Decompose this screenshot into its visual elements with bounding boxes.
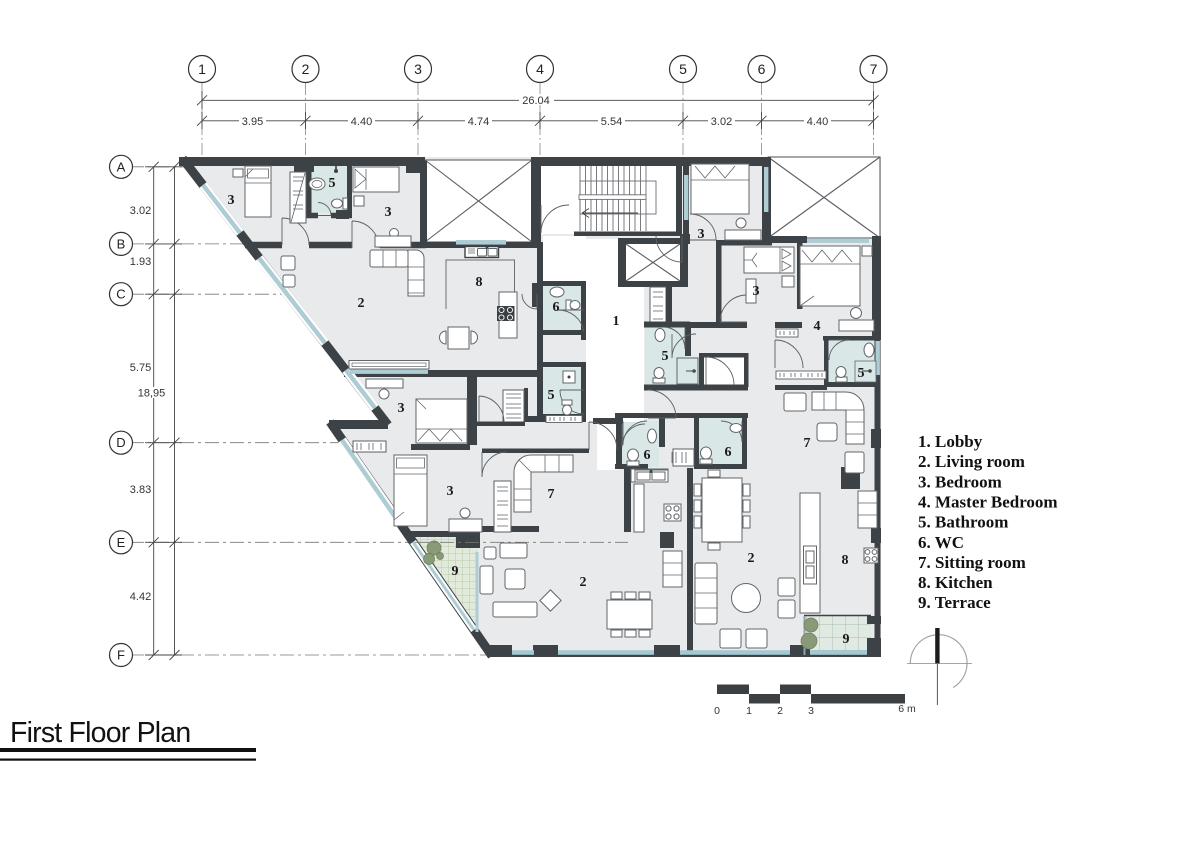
svg-text:6: 6 (758, 61, 766, 77)
svg-text:9: 9 (843, 632, 850, 647)
svg-text:6. WC: 6. WC (918, 533, 964, 552)
svg-text:6: 6 (553, 300, 560, 315)
svg-text:6: 6 (725, 445, 732, 460)
svg-text:3: 3 (414, 61, 422, 77)
svg-text:2: 2 (358, 296, 365, 311)
svg-text:26.04: 26.04 (522, 95, 550, 107)
svg-text:3.95: 3.95 (242, 116, 263, 128)
svg-text:0: 0 (714, 705, 720, 717)
svg-text:3: 3 (385, 205, 392, 220)
svg-text:1.93: 1.93 (130, 256, 151, 268)
svg-text:3: 3 (447, 484, 454, 499)
svg-text:D: D (116, 435, 125, 450)
svg-text:4.40: 4.40 (351, 116, 372, 128)
svg-text:4: 4 (814, 319, 821, 334)
svg-text:4: 4 (536, 61, 544, 77)
svg-text:3.02: 3.02 (711, 116, 732, 128)
svg-text:4.74: 4.74 (468, 116, 489, 128)
svg-text:3: 3 (698, 227, 705, 242)
svg-text:1: 1 (746, 705, 752, 717)
svg-text:A: A (117, 159, 126, 174)
svg-text:4. Master Bedroom: 4. Master Bedroom (918, 493, 1058, 512)
svg-text:2. Living room: 2. Living room (918, 452, 1025, 471)
svg-text:1: 1 (198, 61, 206, 77)
svg-text:B: B (117, 236, 126, 251)
svg-text:6: 6 (644, 448, 651, 463)
svg-text:7: 7 (870, 61, 878, 77)
svg-text:2: 2 (777, 705, 783, 717)
svg-text:8: 8 (476, 275, 483, 290)
svg-text:18,95: 18,95 (138, 388, 166, 400)
svg-text:3.02: 3.02 (130, 205, 151, 217)
svg-text:E: E (117, 535, 126, 550)
svg-text:5: 5 (662, 349, 669, 364)
svg-text:First Floor Plan: First Floor Plan (10, 717, 190, 749)
svg-text:3.83: 3.83 (130, 484, 151, 496)
svg-text:5: 5 (679, 61, 687, 77)
svg-text:7. Sitting room: 7. Sitting room (918, 553, 1026, 572)
svg-text:C: C (116, 287, 125, 302)
svg-text:2: 2 (580, 575, 587, 590)
svg-text:7: 7 (804, 436, 811, 451)
svg-text:2: 2 (302, 61, 310, 77)
svg-text:3: 3 (753, 284, 760, 299)
svg-text:5: 5 (548, 388, 555, 403)
svg-text:2: 2 (748, 551, 755, 566)
svg-text:3: 3 (398, 401, 405, 416)
svg-text:3: 3 (808, 705, 814, 717)
svg-text:6 m: 6 m (898, 703, 916, 715)
svg-text:5: 5 (858, 366, 865, 381)
svg-text:3: 3 (228, 193, 235, 208)
svg-text:1. Lobby: 1. Lobby (918, 432, 983, 451)
svg-text:7: 7 (548, 487, 555, 502)
svg-text:3. Bedroom: 3. Bedroom (918, 472, 1002, 491)
svg-text:4.42: 4.42 (130, 591, 151, 603)
svg-text:5: 5 (329, 176, 336, 191)
svg-text:5.75: 5.75 (130, 362, 151, 374)
svg-text:5. Bathroom: 5. Bathroom (918, 513, 1008, 532)
svg-text:1: 1 (613, 314, 620, 329)
svg-text:9: 9 (452, 564, 459, 579)
svg-text:8. Kitchen: 8. Kitchen (918, 573, 993, 592)
svg-text:F: F (117, 648, 125, 663)
svg-text:8: 8 (842, 553, 849, 568)
svg-text:4.40: 4.40 (807, 116, 828, 128)
svg-text:5.54: 5.54 (601, 116, 622, 128)
svg-text:9. Terrace: 9. Terrace (918, 593, 991, 612)
